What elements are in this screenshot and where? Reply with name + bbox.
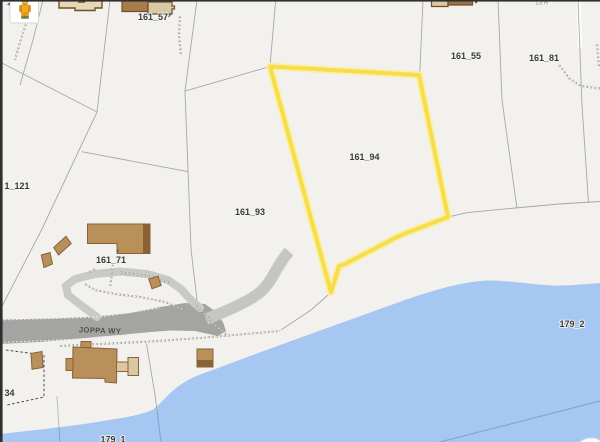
svg-text:161_94: 161_94 xyxy=(349,152,379,162)
svg-text:179_1: 179_1 xyxy=(100,435,125,442)
svg-text:1_121: 1_121 xyxy=(4,181,29,191)
svg-text:161_81: 161_81 xyxy=(529,53,559,63)
svg-text:34: 34 xyxy=(4,388,14,398)
svg-text:JOPPA WY: JOPPA WY xyxy=(79,325,122,335)
svg-text:179_2: 179_2 xyxy=(559,319,584,329)
svg-text:161_71: 161_71 xyxy=(96,255,126,265)
svg-text:161_55: 161_55 xyxy=(451,51,481,61)
svg-text:161_57: 161_57 xyxy=(138,12,168,22)
svg-text:161_93: 161_93 xyxy=(235,207,265,217)
